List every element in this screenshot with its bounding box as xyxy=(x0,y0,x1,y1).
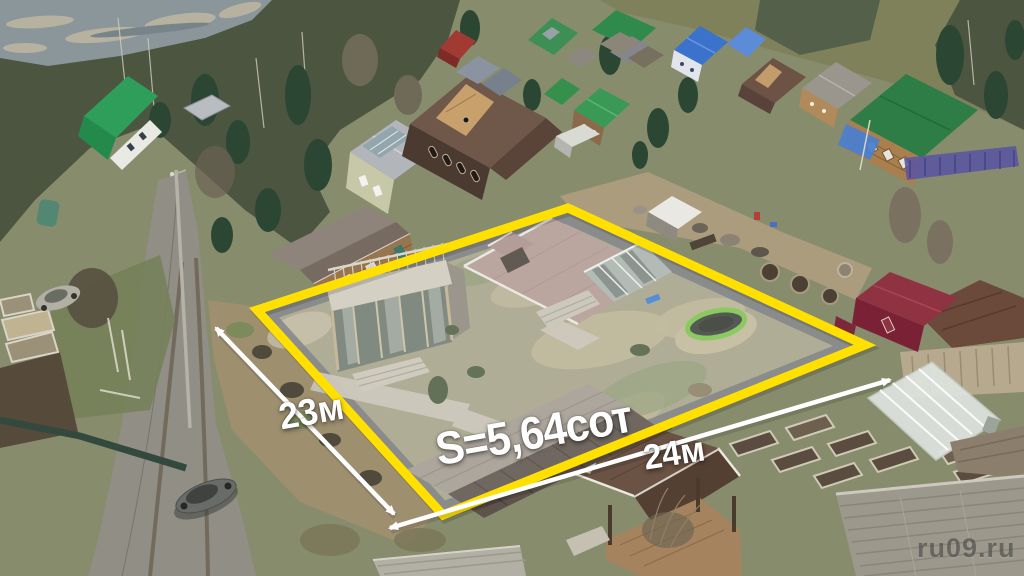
label-bottom-dimension: 24м xyxy=(641,431,707,475)
aerial-property-photo: 23м 24м S=5,64сот ru09.ru xyxy=(0,0,1024,576)
watermark: ru09.ru xyxy=(917,535,1016,562)
scene xyxy=(0,0,1024,576)
